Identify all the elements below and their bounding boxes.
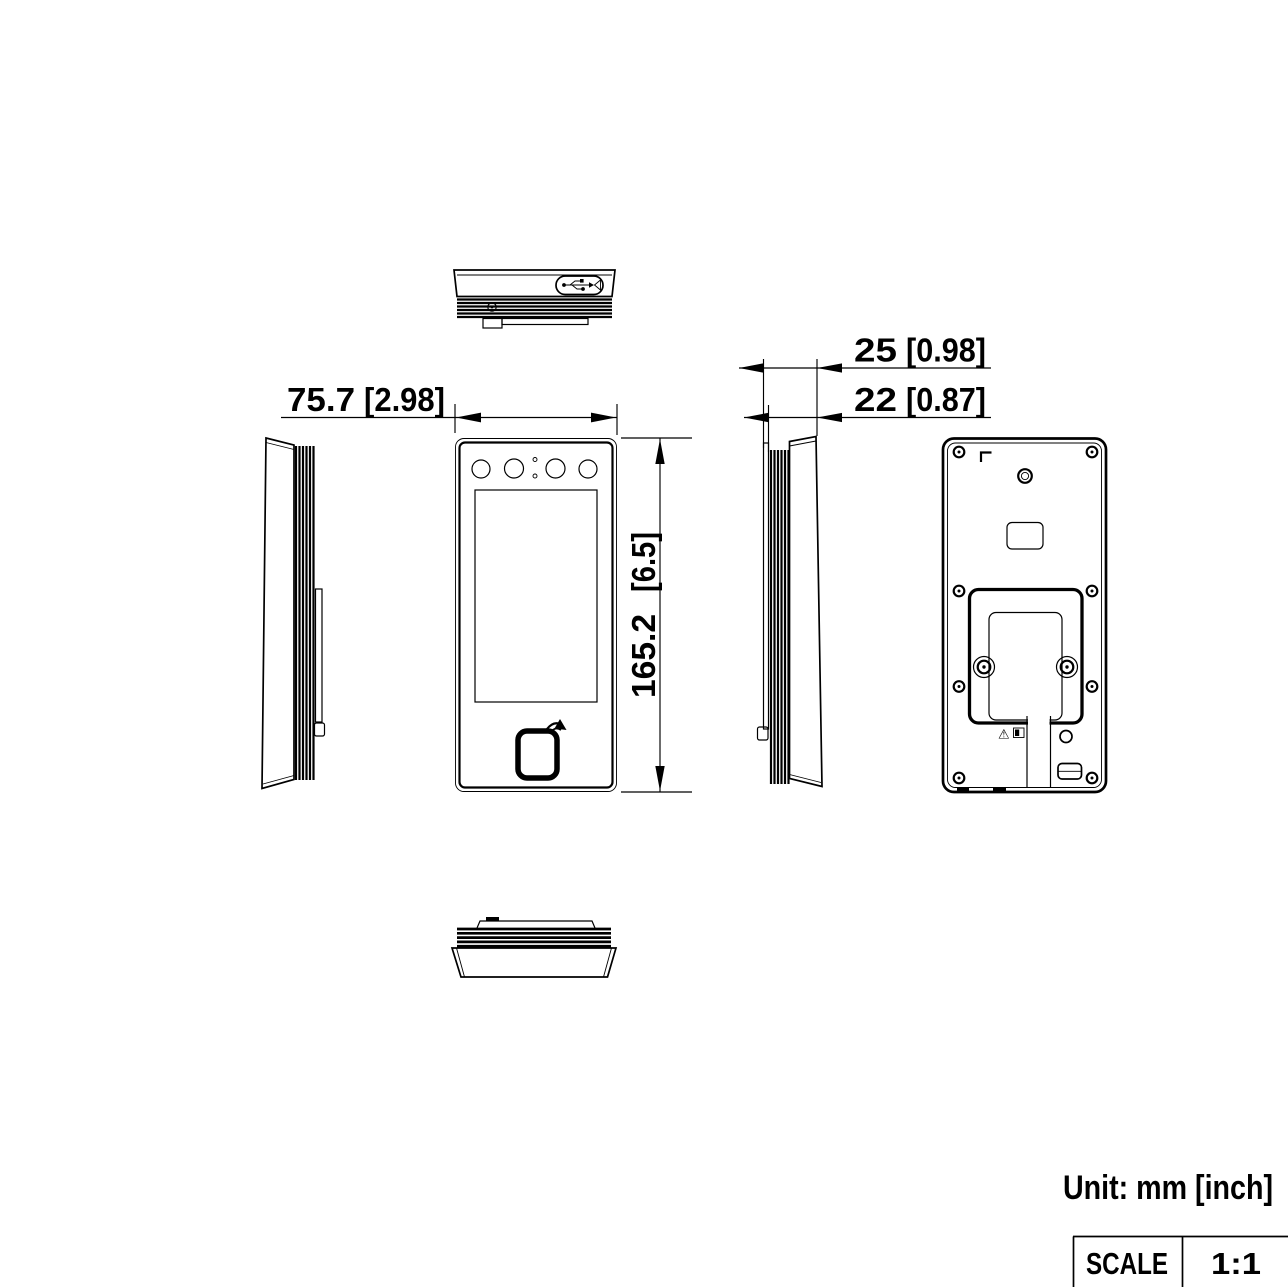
bottom-view-face bbox=[452, 948, 616, 977]
dimension-front-width: 75.7 [2.98] bbox=[281, 381, 617, 435]
dimension-depth-body: 22 [0.87] bbox=[744, 381, 991, 452]
screw-icon bbox=[1087, 681, 1098, 692]
indicator-dot-icon bbox=[533, 458, 537, 462]
dim-arrow-left bbox=[739, 363, 763, 372]
dim-front-height-mm: 165.2 bbox=[625, 614, 662, 698]
bottom-view-recess bbox=[477, 917, 595, 928]
drawing-canvas: ⚠ 75.7 bbox=[0, 0, 1288, 1287]
dim-depth-overall-inch: [0.98] bbox=[906, 332, 986, 369]
front-view-outer-outline bbox=[456, 439, 617, 792]
cable-knockout bbox=[1007, 523, 1043, 550]
camera-lens-icon bbox=[546, 459, 565, 478]
dim-arrow-right bbox=[591, 413, 616, 423]
mounting-screw-icon bbox=[1057, 657, 1078, 678]
camera-lens-icon bbox=[505, 459, 524, 478]
top-view-screw-dot bbox=[491, 306, 494, 309]
dim-depth-overall-mm: 25 bbox=[854, 332, 897, 369]
top-view-bottom-ledge bbox=[502, 319, 588, 325]
screw-icon bbox=[954, 447, 965, 458]
dim-front-height-inch: [6.5] bbox=[625, 532, 662, 592]
left-view-mounting-plate bbox=[316, 589, 323, 722]
right-view-fins bbox=[771, 450, 789, 784]
bottom-view bbox=[452, 917, 616, 977]
top-view-fins bbox=[457, 300, 612, 318]
top-view-bottom-tab bbox=[483, 319, 502, 329]
scale-label: SCALE bbox=[1086, 1246, 1168, 1281]
right-view-bottom-bezel-line bbox=[790, 775, 822, 783]
dim-arrow-right bbox=[817, 363, 842, 372]
camera-lens-icon bbox=[579, 460, 597, 478]
bottom-view-corner-line bbox=[604, 948, 612, 977]
orientation-corner-mark bbox=[981, 453, 992, 463]
touch-screen bbox=[475, 490, 597, 702]
label-icon-fill bbox=[1015, 730, 1019, 737]
scale-value: 1:1 bbox=[1211, 1246, 1261, 1281]
left-side-view bbox=[262, 438, 325, 789]
dim-arrow-right bbox=[817, 413, 842, 422]
screw-icon bbox=[1087, 773, 1098, 784]
warning-label: ⚠ bbox=[998, 727, 1024, 742]
dim-arrow-up bbox=[655, 439, 664, 464]
cable-channel-mask bbox=[1028, 717, 1050, 726]
usb-port bbox=[556, 276, 603, 295]
back-screw-holes bbox=[954, 447, 1098, 784]
front-view-inner-outline bbox=[460, 443, 613, 788]
left-view-front-face bbox=[262, 438, 294, 789]
top-view bbox=[454, 270, 615, 328]
scale-table: SCALE 1:1 bbox=[1073, 1237, 1288, 1287]
bottom-clip-tab bbox=[957, 787, 969, 791]
play-triangle-icon bbox=[595, 280, 601, 290]
screw-icon bbox=[954, 586, 965, 597]
left-view-cable-bump bbox=[315, 723, 325, 736]
bottom-view-tab bbox=[486, 917, 499, 922]
dim-depth-body-mm: 22 bbox=[854, 381, 897, 418]
dim-arrow-down bbox=[655, 766, 664, 791]
hook-slot bbox=[1058, 764, 1082, 780]
card-reader-icon bbox=[518, 719, 567, 778]
indicator-dot-icon bbox=[533, 474, 537, 478]
right-view-mounting-plate bbox=[764, 443, 769, 729]
dim-arrow-left bbox=[744, 413, 768, 422]
dim-arrow-left bbox=[456, 413, 481, 423]
unit-note: Unit: mm [inch] bbox=[1063, 1169, 1273, 1207]
back-hole-icon bbox=[1060, 731, 1072, 743]
back-view: ⚠ bbox=[943, 439, 1106, 793]
engineering-drawing-sheet: ⚠ 75.7 bbox=[0, 0, 1288, 1287]
top-screw-hole-icon bbox=[1018, 469, 1032, 483]
card-tap-arrow bbox=[555, 719, 567, 730]
usb-icon bbox=[562, 279, 594, 291]
top-view-outline bbox=[454, 270, 615, 297]
dim-depth-body-inch: [0.87] bbox=[906, 381, 986, 418]
mounting-screw-icon bbox=[974, 657, 995, 678]
screw-icon bbox=[1087, 447, 1098, 458]
card-reader-outline bbox=[518, 731, 557, 778]
left-view-fins bbox=[296, 446, 314, 780]
dim-front-width-inch: [2.98] bbox=[364, 381, 445, 418]
mounting-recess-outline bbox=[989, 613, 1062, 721]
right-view-top-bezel-line bbox=[790, 441, 817, 446]
screw-icon bbox=[954, 681, 965, 692]
bottom-clip-tab bbox=[993, 787, 1006, 791]
right-side-view bbox=[758, 437, 823, 787]
right-view-front-face bbox=[790, 437, 823, 787]
left-view-bottom-bezel-line bbox=[263, 776, 294, 785]
screw-icon bbox=[1087, 586, 1098, 597]
camera-array bbox=[472, 458, 597, 479]
dim-front-height-text: 165.2 [6.5] bbox=[625, 532, 662, 698]
front-view bbox=[456, 439, 617, 792]
dim-front-width-mm: 75.7 bbox=[287, 381, 355, 418]
warning-icon: ⚠ bbox=[998, 727, 1010, 742]
screw-icon bbox=[954, 773, 965, 784]
camera-lens-icon bbox=[472, 460, 490, 478]
dimension-front-height: 165.2 [6.5] bbox=[621, 438, 692, 792]
bottom-view-fins bbox=[457, 929, 611, 946]
